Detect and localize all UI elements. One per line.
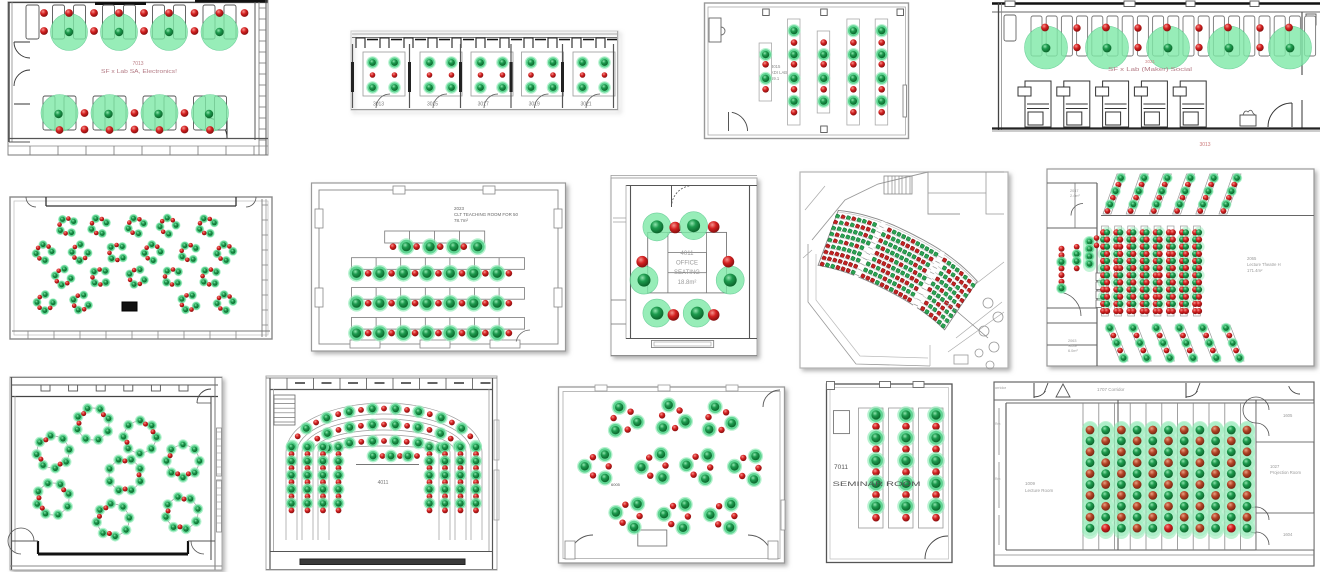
svg-text:3017: 3017	[478, 102, 489, 108]
svg-text:1605: 1605	[1283, 413, 1293, 418]
svg-text:6005: 6005	[611, 482, 621, 487]
svg-text:2023: 2023	[454, 206, 465, 211]
svg-text:7011: 7011	[834, 464, 848, 471]
svg-text:4011: 4011	[378, 480, 389, 486]
svg-text:Rm: Rm	[995, 477, 1001, 481]
svg-text:Store: Store	[1068, 344, 1077, 348]
svg-text:4011: 4011	[681, 251, 695, 257]
svg-text:2063: 2063	[1068, 339, 1076, 343]
svg-text:Lecture Room: Lecture Room	[1025, 488, 1054, 493]
svg-text:78.7m²: 78.7m²	[454, 218, 469, 223]
svg-text:3013: 3013	[373, 102, 384, 108]
svg-text:CLT TEACHING ROOM FOR 50: CLT TEACHING ROOM FOR 50	[454, 212, 518, 217]
svg-text:1707 Corridor: 1707 Corridor	[1097, 387, 1125, 392]
svg-text:Projection Room: Projection Room	[1270, 470, 1301, 475]
svg-text:3015: 3015	[771, 64, 781, 69]
svg-text:1009: 1009	[1025, 481, 1036, 486]
svg-text:SF x Lab (Maker) Social: SF x Lab (Maker) Social	[1108, 67, 1192, 73]
svg-text:7013: 7013	[132, 61, 143, 67]
svg-text:6.0m²: 6.0m²	[1068, 349, 1078, 353]
svg-text:orridor: orridor	[995, 386, 1007, 390]
svg-text:171.4m²: 171.4m²	[1247, 268, 1263, 273]
svg-text:18.8m²: 18.8m²	[678, 280, 697, 286]
svg-text:SEATING: SEATING	[674, 270, 700, 276]
svg-text:2.4m²: 2.4m²	[1070, 194, 1080, 198]
svg-text:Lecture Theatre H: Lecture Theatre H	[1247, 262, 1281, 267]
svg-text:SEMINAR ROOM: SEMINAR ROOM	[833, 482, 921, 488]
svg-text:2047: 2047	[1070, 189, 1078, 193]
svg-text:3021: 3021	[1145, 59, 1156, 64]
svg-text:Rm: Rm	[995, 422, 1001, 426]
svg-text:2065: 2065	[1247, 256, 1257, 261]
svg-text:3021: 3021	[580, 102, 591, 108]
svg-text:SF x Lab SA, Electronics!: SF x Lab SA, Electronics!	[101, 69, 178, 75]
svg-text:1604: 1604	[1283, 532, 1293, 537]
svg-text:3019: 3019	[529, 102, 540, 108]
svg-text:3015: 3015	[427, 102, 438, 108]
svg-text:3013: 3013	[1199, 142, 1210, 148]
svg-text:OFFICE: OFFICE	[676, 261, 698, 267]
svg-text:59.1: 59.1	[771, 76, 780, 81]
svg-text:1027: 1027	[1270, 464, 1280, 469]
